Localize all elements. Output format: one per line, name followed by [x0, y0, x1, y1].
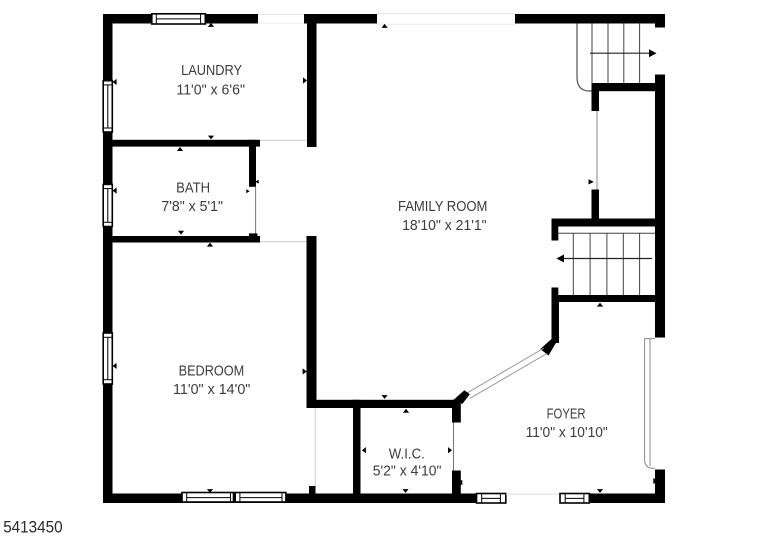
svg-text:7'8" x 5'1": 7'8" x 5'1" [161, 199, 223, 215]
svg-text:FAMILY ROOM: FAMILY ROOM [398, 199, 488, 215]
svg-text:BEDROOM: BEDROOM [179, 363, 245, 379]
svg-text:BATH: BATH [176, 181, 210, 197]
svg-text:5'2" x 4'10": 5'2" x 4'10" [373, 464, 442, 480]
svg-text:5413450: 5413450 [3, 519, 63, 537]
svg-text:LAUNDRY: LAUNDRY [181, 63, 242, 79]
svg-text:W.I.C.: W.I.C. [389, 447, 425, 463]
svg-text:18'10" x 21'1": 18'10" x 21'1" [402, 218, 487, 234]
svg-text:11'0" x 6'6": 11'0" x 6'6" [176, 82, 245, 98]
svg-text:FOYER: FOYER [547, 406, 586, 422]
svg-text:11'0" x 10'10": 11'0" x 10'10" [526, 425, 608, 441]
svg-text:11'0" x 14'0": 11'0" x 14'0" [173, 382, 250, 398]
